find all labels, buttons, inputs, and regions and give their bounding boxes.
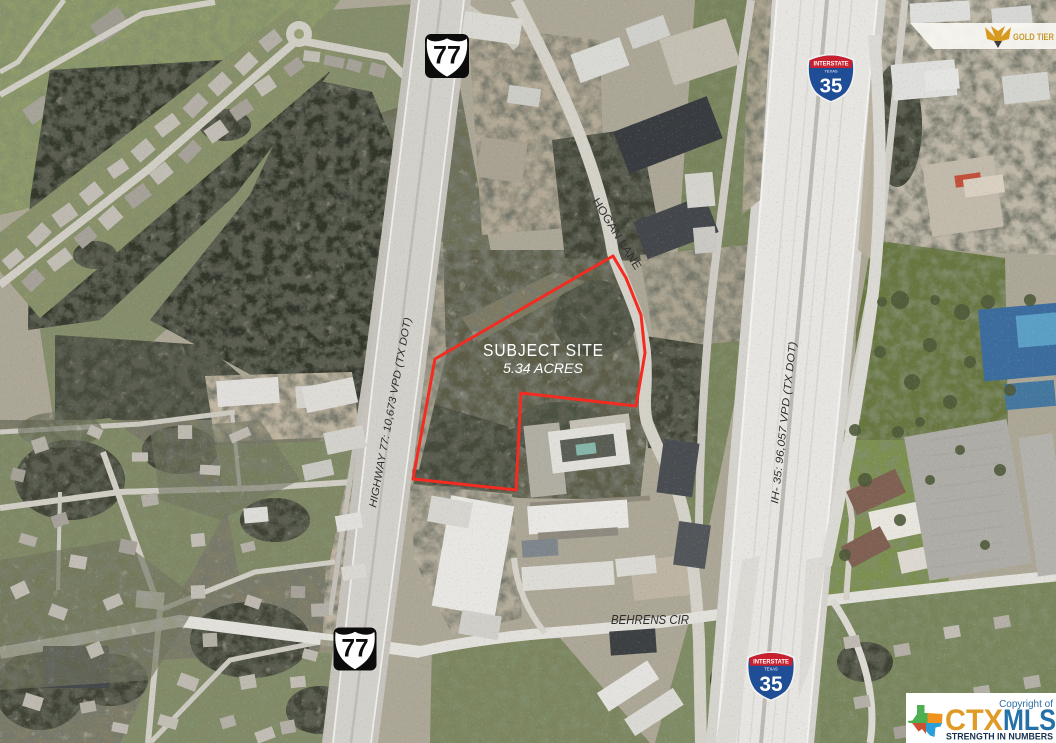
svg-text:INTERSTATE: INTERSTATE (814, 61, 849, 68)
svg-text:TEXAS: TEXAS (824, 69, 837, 74)
svg-text:35: 35 (759, 673, 783, 696)
svg-text:BEHRENS CIR: BEHRENS CIR (611, 613, 689, 627)
svg-text:STRENGTH IN NUMBERS: STRENGTH IN NUMBERS (946, 732, 1053, 743)
svg-text:35: 35 (820, 75, 843, 98)
svg-text:INTERSTATE: INTERSTATE (753, 658, 789, 665)
svg-text:77: 77 (341, 635, 368, 662)
svg-text:SUBJECT SITE: SUBJECT SITE (483, 340, 604, 360)
svg-text:77: 77 (433, 41, 461, 69)
svg-text:GOLD TIER: GOLD TIER (1013, 32, 1054, 43)
svg-text:TEXAS: TEXAS (764, 666, 778, 671)
svg-text:5.34 ACRES: 5.34 ACRES (503, 360, 584, 376)
